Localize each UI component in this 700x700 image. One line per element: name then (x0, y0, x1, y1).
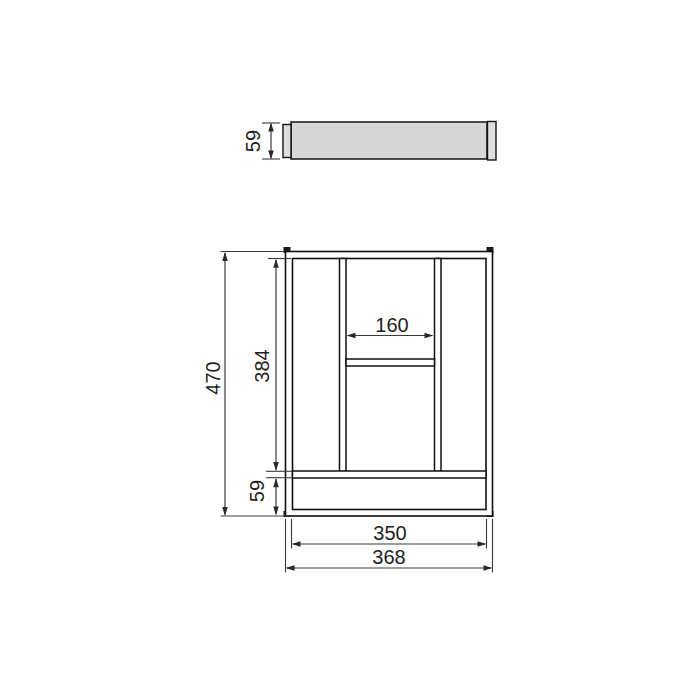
side-view: 59 (242, 122, 496, 161)
overall-height-dim-label: 470 (202, 361, 224, 394)
vertical-divider-left (340, 259, 347, 472)
arrow-down-icon (222, 507, 228, 516)
side-view-body (291, 122, 487, 159)
center-width-dim-label: 160 (375, 314, 408, 336)
dimension-drawing-svg: 59 470 (0, 0, 700, 700)
inner-width-dimension: 350 (292, 519, 487, 549)
overall-width-dim-label: 368 (372, 546, 405, 568)
arrow-down-icon (268, 151, 274, 160)
arrow-down-icon (273, 507, 279, 516)
arrow-up-icon (273, 478, 279, 487)
vertical-divider-right (435, 259, 442, 472)
front-compartment-dim-label: 59 (246, 480, 268, 502)
arrow-right-icon (484, 565, 493, 571)
drawing-canvas: 59 470 (0, 0, 700, 700)
side-thickness-dimension: 59 (242, 123, 280, 160)
side-view-left-cap (283, 125, 291, 158)
inner-width-dim-label: 350 (373, 522, 406, 544)
bottom-horizontal-divider (293, 471, 487, 478)
arrow-up-icon (273, 259, 279, 268)
arrow-left-icon (292, 541, 301, 547)
inner-height-dim-label: 384 (251, 349, 273, 382)
overall-height-dimension: 470 (202, 252, 293, 517)
arrow-right-icon (478, 541, 487, 547)
side-view-right-cap (488, 122, 497, 161)
plan-view (284, 247, 494, 517)
arrow-up-icon (222, 252, 228, 261)
side-thickness-dim-label: 59 (242, 130, 264, 152)
arrow-down-icon (273, 462, 279, 471)
center-horizontal-divider (346, 359, 435, 366)
arrow-left-icon (286, 565, 295, 571)
arrow-up-icon (268, 123, 274, 132)
